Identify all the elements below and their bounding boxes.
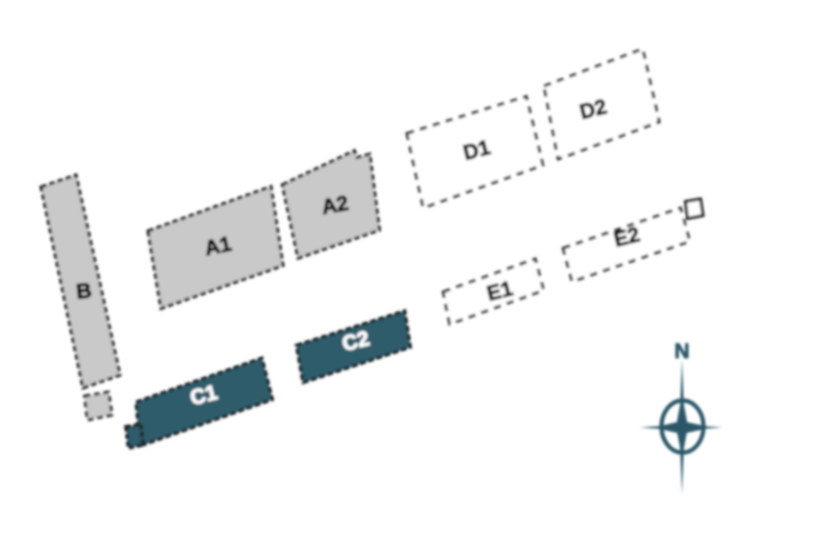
svg-text:A2: A2	[320, 192, 350, 219]
svg-text:B: B	[75, 279, 92, 303]
